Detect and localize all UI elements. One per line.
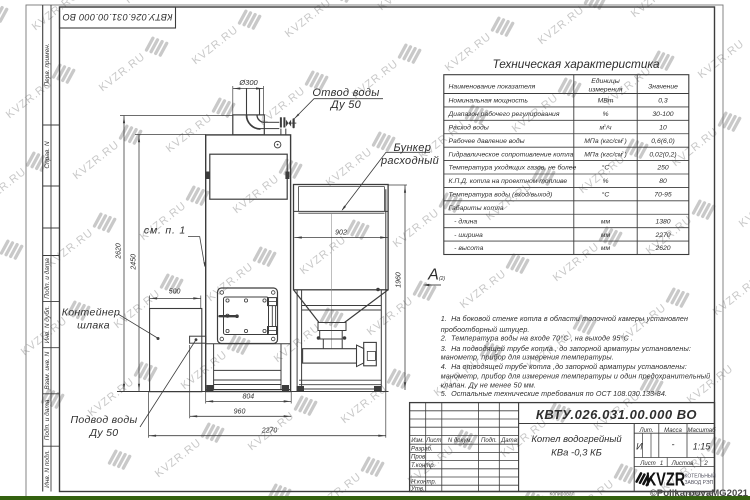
svg-text:А: А: [427, 267, 439, 284]
svg-text:КВТУ.026.031.00.000 ВО: КВТУ.026.031.00.000 ВО: [62, 12, 172, 22]
svg-text:250: 250: [656, 165, 669, 172]
svg-text:Котел водогрейный: Котел водогрейный: [531, 434, 622, 445]
svg-text:МПа (кгс/см ): МПа (кгс/см ): [584, 151, 627, 158]
svg-text:2620: 2620: [654, 245, 670, 252]
svg-text:10: 10: [659, 124, 667, 131]
svg-text:Единицы: Единицы: [591, 77, 619, 85]
svg-text:манометр, прибор для измерения: манометр, прибор для измерения температу…: [441, 372, 711, 381]
svg-text:%: %: [602, 111, 608, 118]
svg-text:1380: 1380: [655, 218, 670, 225]
svg-text:1:15: 1:15: [693, 442, 712, 452]
svg-text:Масштаб: Масштаб: [687, 428, 716, 434]
svg-text:KVZR.RU: KVZR.RU: [231, 173, 282, 216]
svg-text:KVZR.RU: KVZR.RU: [0, 166, 29, 209]
svg-text:KVZR.RU: KVZR.RU: [86, 376, 137, 419]
svg-text:KVZR.RU: KVZR.RU: [629, 0, 680, 20]
svg-text:Лист: Лист: [639, 461, 655, 467]
svg-text:Взам. инв. N: Взам. инв. N: [44, 351, 51, 389]
svg-text:KVZR.RU: KVZR.RU: [737, 187, 750, 230]
svg-text:500: 500: [169, 289, 181, 296]
svg-text:KVZR.RU: KVZR.RU: [97, 51, 148, 94]
svg-text:Ø300: Ø300: [238, 78, 258, 87]
svg-text:Подп. и дата: Подп. и дата: [43, 399, 51, 440]
svg-text:KVZR.RU: KVZR.RU: [164, 112, 215, 155]
svg-text:2: 2: [703, 461, 708, 467]
svg-text:902: 902: [335, 230, 347, 237]
svg-text:Значение: Значение: [648, 84, 678, 91]
svg-text:КВа -0,3 КБ: КВа -0,3 КБ: [551, 448, 602, 459]
svg-text:Рабочее давление воды: Рабочее давление воды: [449, 137, 525, 145]
svg-text:0,3: 0,3: [658, 98, 668, 105]
svg-text:МВт: МВт: [598, 98, 614, 105]
svg-text:KVZR.RU: KVZR.RU: [298, 234, 349, 277]
svg-text:2270: 2270: [261, 428, 278, 435]
svg-text:%: %: [602, 178, 608, 185]
svg-text:KVZR.RU: KVZR.RU: [685, 363, 736, 406]
svg-text:KVZR.RU: KVZR.RU: [484, 180, 535, 223]
svg-text:5. Остальные технические треб: 5. Остальные технические требования по О…: [441, 389, 667, 398]
svg-text:960: 960: [234, 408, 246, 415]
svg-text:Гидравлическое сопротивление к: Гидравлическое сопротивление котла: [449, 150, 574, 158]
svg-text:KVZR.RU: KVZR.RU: [138, 200, 189, 243]
svg-text:- длина: - длина: [449, 217, 478, 225]
svg-text:м /ч: м /ч: [600, 124, 612, 131]
svg-text:Справ. N: Справ. N: [44, 141, 51, 169]
svg-text:Перв. примен.: Перв. примен.: [44, 43, 51, 86]
svg-text:KVZR.RU: KVZR.RU: [190, 24, 241, 67]
svg-text:0,6(6,0): 0,6(6,0): [651, 138, 674, 145]
svg-text:Температура воды (вход/выход): Температура воды (вход/выход): [449, 191, 553, 199]
svg-text:KVZR.RU: KVZR.RU: [458, 268, 509, 311]
svg-text:Лит.: Лит.: [638, 428, 653, 434]
svg-text:Расход воды: Расход воды: [449, 123, 489, 131]
svg-text:-: -: [672, 440, 675, 450]
svg-text:1960: 1960: [396, 272, 403, 288]
svg-text:4. На отводящей трубе котла ,: 4. На отводящей трубе котла ,до запорной…: [441, 362, 687, 371]
svg-text:2. Температура воды на входе: 2. Температура воды на входе 70°С , на в…: [440, 334, 633, 343]
svg-text:МПа (кгс/см ): МПа (кгс/см ): [584, 138, 627, 145]
svg-text:°С: °С: [602, 191, 610, 199]
svg-text:К.П.Д. котла на проектном топл: К.П.Д. котла на проектном топливе: [449, 178, 568, 185]
svg-text:2620: 2620: [116, 243, 123, 260]
svg-text:ЗАВОД РЭП: ЗАВОД РЭП: [685, 480, 714, 486]
svg-text:KVZR.RU: KVZR.RU: [536, 4, 587, 47]
svg-text:Температура уходящих газов, не: Температура уходящих газов, не более: [449, 164, 577, 172]
svg-text:KVZR.RU: KVZR.RU: [0, 254, 3, 297]
svg-text:- ширина: - ширина: [449, 232, 484, 239]
svg-text:Отвод воды: Отвод воды: [312, 87, 379, 99]
svg-text:Номинальная мощность: Номинальная мощность: [449, 98, 529, 105]
svg-text:Диапазон рабочего регулировани: Диапазон рабочего регулирования: [448, 110, 560, 118]
svg-text:Дата: Дата: [500, 438, 517, 444]
svg-text:2270: 2270: [654, 232, 670, 239]
svg-text:Инв. N подл.: Инв. N подл.: [43, 450, 51, 488]
svg-text:Ду 50: Ду 50: [89, 427, 119, 439]
svg-text:Изм.: Изм.: [411, 438, 424, 444]
svg-text:1: 1: [660, 461, 663, 467]
svg-text:пробоотборный штуцер.: пробоотборный штуцер.: [441, 325, 530, 334]
svg-text:KVZR.RU: KVZR.RU: [551, 241, 602, 284]
svg-text:Н.контр.: Н.контр.: [411, 479, 436, 485]
svg-text:KVZR.RU: KVZR.RU: [391, 207, 442, 250]
svg-text:30-100: 30-100: [652, 111, 673, 118]
svg-text:Подп.: Подп.: [481, 438, 497, 444]
svg-text:КВТУ.026.031.00.000 ВО: КВТУ.026.031.00.000 ВО: [536, 407, 697, 422]
svg-text:KVZR.RU: KVZR.RU: [205, 261, 256, 304]
svg-text:KVZR.RU: KVZR.RU: [45, 227, 96, 270]
svg-text:Пров.: Пров.: [411, 455, 427, 461]
svg-text:см. п. 1: см. п. 1: [144, 225, 186, 237]
svg-text:И: И: [636, 442, 643, 452]
svg-text:80: 80: [659, 178, 667, 185]
svg-text:KVZR: KVZR: [646, 469, 685, 490]
svg-text:KVZR.RU: KVZR.RU: [71, 139, 122, 182]
svg-text:мм: мм: [601, 218, 611, 225]
svg-text:Листов: Листов: [671, 461, 694, 467]
svg-text:мм: мм: [601, 232, 611, 239]
svg-text:Контейнер: Контейнер: [62, 307, 120, 319]
svg-text:Разраб.: Разраб.: [411, 447, 433, 453]
svg-text:N докум.: N докум.: [448, 438, 472, 444]
svg-text:Т.контр.: Т.контр.: [411, 463, 435, 469]
svg-text:KVZR.RU: KVZR.RU: [283, 0, 334, 40]
svg-text:Техническая характеристика: Техническая характеристика: [492, 57, 659, 71]
svg-text:KVZR.RU: KVZR.RU: [696, 38, 747, 81]
svg-text:(2): (2): [439, 276, 445, 282]
svg-text:КОТЕЛЬНЫЙ: КОТЕЛЬНЫЙ: [685, 472, 717, 480]
svg-text:Габариты котла: Габариты котла: [449, 204, 504, 212]
svg-text:°С: °С: [602, 164, 610, 172]
svg-text:Масса: Масса: [664, 428, 682, 434]
svg-text:манометр, прибор для измерения: манометр, прибор для измерения температу…: [441, 352, 614, 361]
svg-text:70-95: 70-95: [654, 192, 672, 199]
svg-text:KVZR.RU: KVZR.RU: [711, 275, 750, 318]
svg-text:KVZR.RU: KVZR.RU: [443, 31, 494, 74]
svg-text:Инв. N дубл.: Инв. N дубл.: [43, 306, 51, 344]
svg-text:Ду 50: Ду 50: [329, 99, 362, 111]
svg-text:Утв.: Утв.: [410, 487, 425, 493]
svg-text:0,02(0,2): 0,02(0,2): [649, 151, 676, 158]
svg-text:измерения: измерения: [588, 87, 622, 94]
svg-text:1. На боковой стенке котла в: 1. На боковой стенке котла в области топ…: [441, 314, 688, 323]
svg-text:Лист: Лист: [425, 438, 441, 444]
svg-text:KVZR.RU: KVZR.RU: [324, 146, 375, 189]
svg-text:шлака: шлака: [77, 320, 110, 332]
svg-text:KVZR.RU: KVZR.RU: [153, 437, 204, 480]
svg-text:мм: мм: [601, 245, 611, 252]
svg-text:2450: 2450: [131, 254, 138, 271]
svg-text:Подп. и дата: Подп. и дата: [43, 258, 51, 299]
svg-text:Наименование показателя: Наименование показателя: [449, 84, 536, 91]
svg-text:804: 804: [242, 394, 254, 401]
svg-text:KVZR.RU: KVZR.RU: [313, 471, 364, 500]
svg-text:- высота: - высота: [449, 245, 484, 252]
svg-text:расходный: расходный: [380, 155, 439, 167]
svg-text:Подвод воды: Подвод воды: [71, 414, 138, 426]
